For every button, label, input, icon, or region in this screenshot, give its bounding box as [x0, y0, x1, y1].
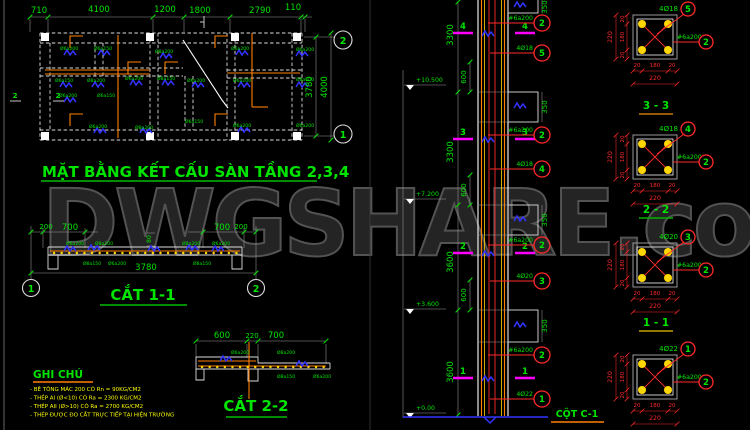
dim-label: 180 — [650, 291, 661, 297]
rebar-callout: 4Ø20 — [516, 272, 533, 280]
dim-label: 20 — [620, 243, 626, 250]
callout-bubble: 2 — [539, 131, 545, 141]
rebar-callout: 4Ø18 — [659, 5, 678, 13]
rebar-label: Ø6a200 — [59, 92, 77, 99]
dim-label: 20 — [620, 15, 626, 22]
cut22-rebar-labels: Ø6a200Ø8a200Ø8a150Ø6a200 — [231, 349, 331, 380]
plan-title: MẶT BẰNG KẾT CẤU SÀN TẦNG 2,3,4 — [42, 160, 349, 181]
dim-label: 220 — [245, 332, 258, 340]
cut-mark-label: 2 — [13, 92, 18, 100]
rebar-label: Ø6a200 — [231, 45, 249, 52]
rebar-callout: #6a200 — [677, 34, 702, 41]
section-title: CẮT 2-2 — [223, 394, 288, 415]
dim-label: 600 — [460, 70, 468, 83]
dim-label: 20 — [620, 135, 626, 142]
rebar-label: Ø8a200 — [155, 48, 173, 55]
rebar-callout: 4Ø18 — [659, 125, 678, 133]
rebar-label: Ø6a200 — [108, 260, 126, 267]
dim-label: 600 — [460, 183, 468, 196]
bottom-artifact-band — [0, 422, 195, 430]
column-section-bottom: 20 180 20 220 20 180 20 220 4Ø22 1 #6a20… — [607, 342, 713, 426]
rebar-label: Ø6a200 — [66, 240, 84, 247]
bent-bar — [482, 251, 494, 256]
dim-label: 20 — [669, 291, 676, 297]
dim-label: 20 — [620, 391, 626, 398]
callout-bubble: 2 — [703, 158, 709, 168]
dim-label: 220 — [607, 371, 614, 383]
dim-label: 20 — [669, 183, 676, 189]
dim-label: 1200 — [154, 5, 176, 15]
cad-drawing-canvas: 710 4100 1200 1800 2790 110 — [0, 0, 750, 430]
rebar-label: Ø8a150 — [193, 260, 211, 267]
rebar-label: Ø6a200 — [233, 77, 251, 84]
note-line: - THÉP AI (Ø<10) CÓ Ra = 2300 KG/CM2 — [30, 394, 142, 402]
grid-bubble-label: 2 — [340, 36, 347, 47]
elevation-story-dims: 3300 3300 3600 3600 600 600 600 — [446, 0, 472, 417]
rebar-label: Ø6a200 — [233, 122, 251, 129]
grid-bubble-1: 1 — [334, 125, 352, 143]
rebar-label: Ø6a200 — [296, 122, 314, 129]
section-title: 2 - 2 — [643, 204, 669, 216]
rebar-callout: 4Ø22 — [659, 345, 678, 353]
dim-label: 710 — [31, 6, 47, 16]
callout-bubble: 2 — [539, 241, 545, 251]
cut-mark-label: 4 — [460, 22, 466, 32]
rebar-label: Ø6a200 — [212, 240, 230, 247]
dim-label: 220 — [607, 31, 614, 43]
section-cut-2-2: 600 220 700 Ø6a200Ø8a200Ø8a150Ø6a200 CẮT… — [194, 331, 332, 417]
dim-label: 20 — [620, 279, 626, 286]
rebar-label: Ø6a200 — [313, 373, 331, 380]
rebar-callout: #6a200 — [508, 15, 533, 22]
cut-mark-label: 3 — [460, 128, 466, 138]
dim-label: 180 — [650, 183, 661, 189]
dim-label: 180 — [620, 371, 626, 382]
rebar-label: Ø8a200 — [182, 240, 200, 247]
floor-plan: 710 4100 1200 1800 2790 110 — [10, 3, 352, 181]
rebar-callout: 4Ø18 — [516, 44, 533, 52]
level-label: +10.500 — [416, 77, 443, 84]
dim-label: 20 — [634, 183, 641, 189]
dim-label: 20 — [620, 51, 626, 58]
column-body — [478, 0, 508, 416]
callout-bubble: 2 — [703, 378, 709, 388]
rebar-label: Ø6a200 — [125, 75, 143, 82]
dim-label: 4100 — [88, 5, 110, 15]
section-title: 1 - 1 — [643, 317, 669, 329]
plan-dimensions-top: 710 4100 1200 1800 2790 110 — [28, 3, 312, 32]
grid-bubble-1: 1 — [23, 280, 40, 297]
dim-label: 350 — [541, 0, 549, 13]
rebar-label: Ø8a200 — [95, 240, 113, 247]
column-section-3-3: 20 180 20 220 20 180 20 220 4Ø18 5 #6a20… — [607, 2, 713, 86]
dim-label: 180 — [650, 63, 661, 69]
section-cut-1-1: 200 700 700 200 80 Ø6a200Ø8a200Ø8a200Ø6a… — [23, 223, 265, 305]
rebar-callout: #6a200 — [508, 127, 533, 134]
dim-label: 350 — [541, 319, 549, 332]
notes-title: GHI CHÚ — [33, 368, 83, 381]
bent-bar — [482, 31, 494, 36]
rebar-label: Ø8a200 — [87, 77, 105, 84]
rebar-label: Ø6a200 — [60, 45, 78, 52]
rebar-label: Ø6a200 — [296, 46, 314, 53]
dim-label: 20 — [634, 403, 641, 409]
grid-bubble-label: 2 — [253, 284, 260, 295]
plan-cut-marks: 2 2 — [10, 16, 204, 101]
dim-label: 2790 — [249, 6, 271, 16]
notes: GHI CHÚ - BÊ TÔNG MÁC 200 CÓ Rn = 90KG/C… — [30, 368, 174, 419]
level-label: +0.00 — [416, 405, 435, 412]
note-line: - BÊ TÔNG MÁC 200 CÓ Rn = 90KG/CM2 — [30, 385, 141, 393]
rebar-label: Ø6a150 — [97, 92, 115, 99]
dim-label: 20 — [620, 171, 626, 178]
rebar-callout: #6a200 — [508, 237, 533, 244]
level-markers: +10.500 +7.200 +3.600 +0.00 — [404, 77, 446, 418]
dim-label: 3780 — [305, 76, 315, 98]
column-section-2-2: 20 180 20 220 20 180 20 220 4Ø18 4 #6a20… — [607, 122, 713, 206]
dim-label: 110 — [285, 3, 301, 13]
rebar-callout: #6a200 — [677, 262, 702, 269]
rebar-callout: 4Ø18 — [516, 160, 533, 168]
rebar-callout: 4Ø20 — [659, 233, 678, 241]
level-label: +3.600 — [416, 301, 439, 308]
bent-bar — [482, 376, 494, 381]
rebar-label: Ø8a150 — [277, 373, 295, 380]
dim-label: 180 — [620, 151, 626, 162]
section-title: CẮT 1-1 — [110, 283, 175, 304]
rebar-callout: #6a200 — [677, 374, 702, 381]
dim-label: 200 — [234, 223, 247, 231]
rebar-label: Ø6a200 — [231, 349, 249, 356]
level-label: +7.200 — [416, 191, 439, 198]
dim-label: 3780 — [135, 263, 157, 273]
grid-bubble-2: 2 — [334, 31, 352, 49]
dim-label: 3300 — [446, 24, 456, 46]
rebar-callout: 4Ø22 — [516, 390, 533, 398]
ground-mark — [484, 417, 496, 423]
rebar-label: Ø8a200 — [277, 349, 295, 356]
grid-bubble-2: 2 — [248, 280, 265, 297]
dim-label: 350 — [541, 100, 549, 113]
callout-bubble: 2 — [539, 351, 545, 361]
rebar-label: Ø8a150 — [157, 75, 175, 82]
cut-mark-label: 2 — [460, 242, 466, 252]
rebar-callout: #6a200 — [508, 347, 533, 354]
column-section-1-1: 20 180 20 220 20 180 20 220 4Ø20 3 #6a20… — [607, 230, 713, 314]
callout-bubble: 2 — [539, 19, 545, 29]
dim-label: 20 — [634, 63, 641, 69]
grid-bubble-label: 1 — [28, 284, 35, 295]
callout-bubble: 4 — [539, 165, 545, 175]
callout-bubble: 5 — [539, 49, 545, 59]
dim-label: 200 — [39, 223, 52, 231]
plan-bent-bars — [60, 50, 308, 133]
column-title: CỘT C-1 — [556, 409, 599, 420]
cut-mark-label: 1 — [460, 367, 466, 377]
rebar-label: Ø6a150 — [94, 45, 112, 52]
callout-bubble: 3 — [685, 233, 691, 243]
section-title: 3 - 3 — [643, 100, 669, 112]
dim-label: 700 — [62, 223, 78, 233]
dim-label: 220 — [649, 415, 661, 422]
dim-label: 3600 — [446, 251, 456, 273]
callout-bubble: 2 — [703, 38, 709, 48]
rebar-label: Ø6a150 — [55, 77, 73, 84]
callout-bubble: 1 — [685, 345, 691, 355]
column-elevation: 3300 3300 3600 3600 600 600 600 — [403, 0, 604, 423]
dim-label: 4000 — [320, 76, 330, 98]
dim-label: 180 — [620, 31, 626, 42]
dim-label: 180 — [620, 259, 626, 270]
rebar-label: Ø8a150 — [83, 260, 101, 267]
rebar-label: Ø6a200 — [89, 123, 107, 130]
dim-label: 220 — [649, 75, 661, 82]
dim-label: 220 — [607, 151, 614, 163]
cut-mark-label: 4 — [522, 22, 528, 32]
dim-label: 700 — [214, 223, 230, 233]
dim-label: 180 — [650, 403, 661, 409]
dim-label: 80 — [146, 235, 153, 243]
dim-label: 20 — [669, 403, 676, 409]
dim-label: 220 — [649, 303, 661, 310]
rebar-label: Ø8a200 — [135, 124, 153, 131]
rebar-label: Ø6a150 — [185, 118, 203, 125]
note-line: - THÉP ĐƯỢC ĐO CẮT TRỰC TIẾP TẠI HIỆN TR… — [30, 411, 174, 419]
elevation-callouts: #6a200 2 4Ø18 5 #6a200 2 4Ø18 4 #6a200 2… — [488, 15, 550, 407]
dim-label: 600 — [214, 331, 230, 341]
dim-label: 350 — [541, 213, 549, 226]
callout-bubble: 2 — [703, 266, 709, 276]
stair-opening-line — [183, 40, 228, 108]
dim-label: 20 — [620, 355, 626, 362]
dim-label: 700 — [268, 331, 284, 341]
dim-label: 1800 — [189, 6, 211, 16]
grid-bubble-label: 1 — [340, 130, 347, 141]
dim-label: 3300 — [446, 141, 456, 163]
bent-bar — [482, 137, 494, 142]
callout-bubble: 3 — [539, 277, 545, 287]
rebar-callout: #6a200 — [677, 154, 702, 161]
dim-label: 3600 — [446, 361, 456, 383]
cut-mark-label: 1 — [522, 367, 528, 377]
rebar-label: Ø6a200 — [187, 77, 205, 84]
dim-label: 20 — [669, 63, 676, 69]
note-line: - THÉP AII (Ø>10) CÓ Ra = 2700 KG/CM2 — [30, 402, 143, 410]
plan-rebar-lines — [45, 33, 300, 138]
dim-label: 220 — [607, 259, 614, 271]
callout-bubble: 4 — [685, 125, 691, 135]
dim-label: 20 — [634, 291, 641, 297]
callout-bubble: 1 — [539, 395, 545, 405]
cut-mark-label: 2 — [56, 92, 61, 100]
dim-label: 220 — [649, 195, 661, 202]
dim-label: 600 — [460, 288, 468, 301]
callout-bubble: 5 — [685, 5, 691, 15]
